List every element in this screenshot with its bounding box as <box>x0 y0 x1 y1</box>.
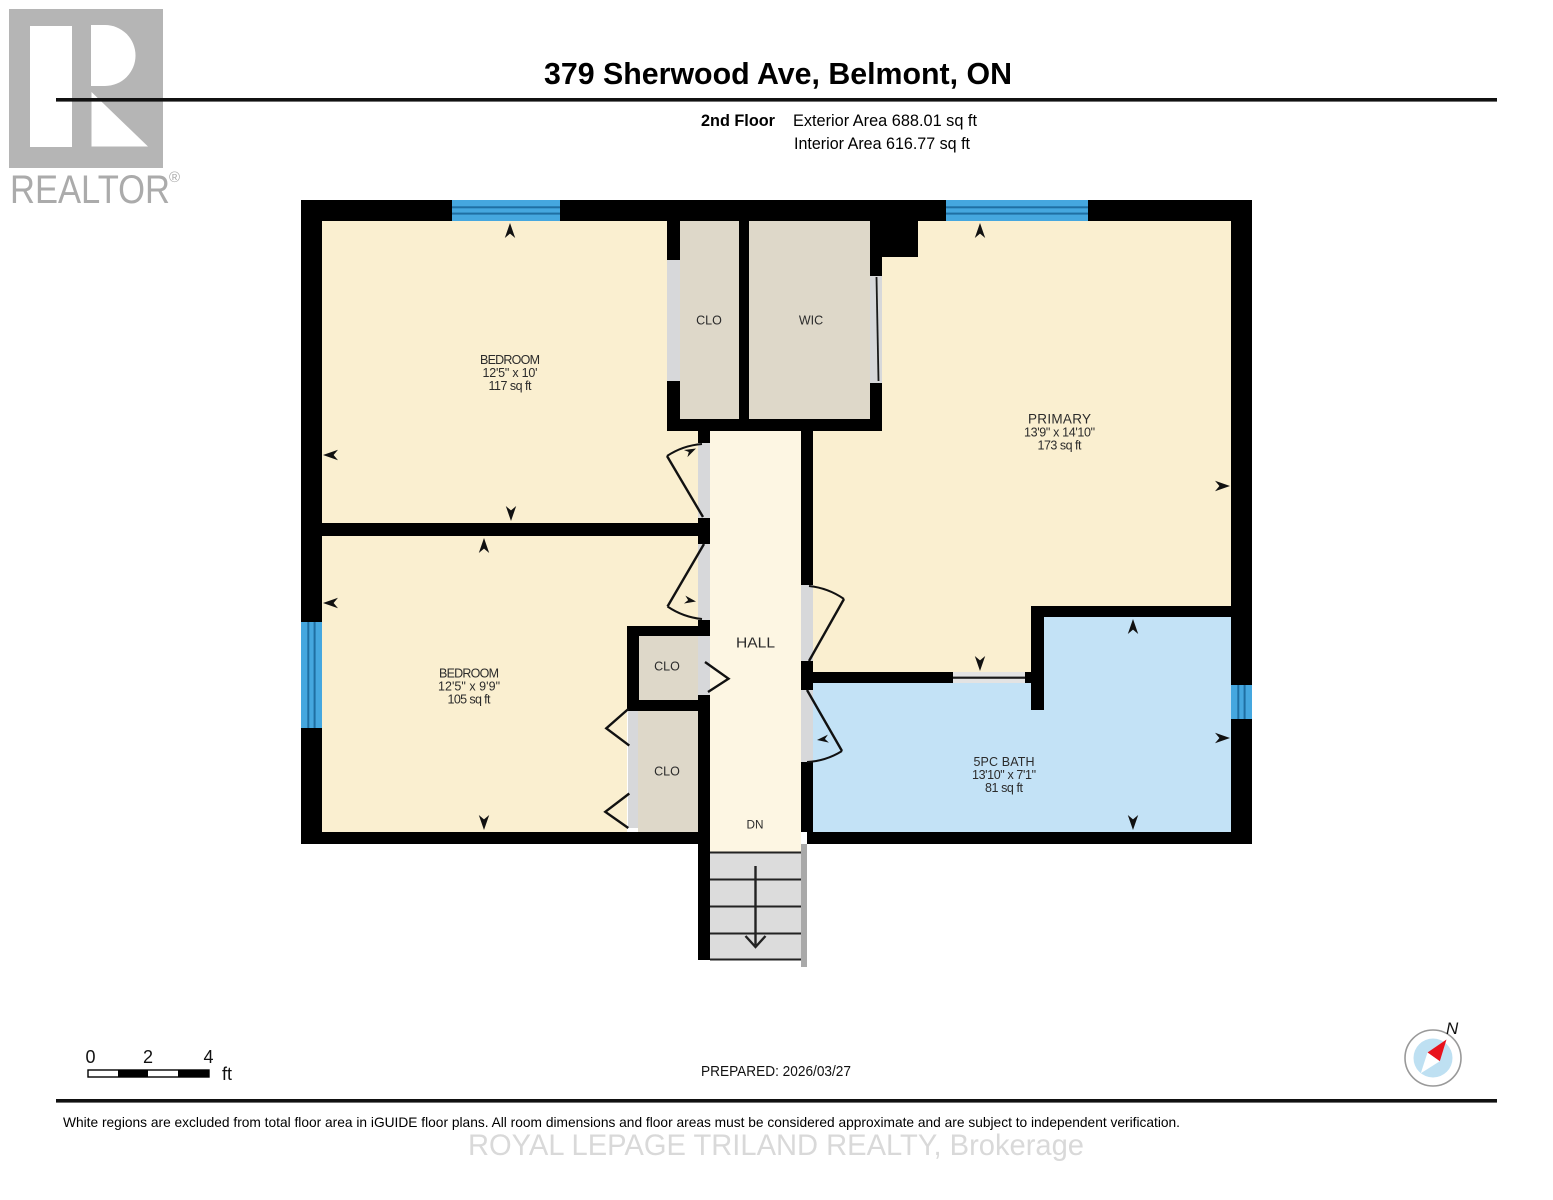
svg-text:BEDROOM: BEDROOM <box>439 667 499 681</box>
svg-text:13'9" x 14'10": 13'9" x 14'10" <box>1024 426 1095 440</box>
svg-text:173 sq ft: 173 sq ft <box>1038 439 1083 453</box>
svg-text:N: N <box>1446 1019 1459 1038</box>
svg-text:ft: ft <box>222 1064 232 1084</box>
svg-text:Exterior Area 688.01 sq ft: Exterior Area 688.01 sq ft <box>793 111 977 130</box>
svg-text:2: 2 <box>143 1047 153 1067</box>
svg-text:Interior Area 616.77 sq ft: Interior Area 616.77 sq ft <box>794 134 970 153</box>
svg-text:BEDROOM: BEDROOM <box>480 353 540 367</box>
svg-text:WIC: WIC <box>799 314 823 328</box>
svg-text:CLO: CLO <box>654 765 680 779</box>
svg-text:ROYAL LEPAGE TRILAND REALTY, B: ROYAL LEPAGE TRILAND REALTY, Brokerage <box>468 1129 1084 1162</box>
svg-text:PRIMARY: PRIMARY <box>1028 412 1091 427</box>
svg-text:13'10" x 7'1": 13'10" x 7'1" <box>972 768 1036 782</box>
svg-text:®: ® <box>169 169 180 186</box>
svg-text:0: 0 <box>85 1047 95 1067</box>
svg-text:2nd Floor: 2nd Floor <box>701 111 775 130</box>
svg-text:4: 4 <box>203 1047 213 1067</box>
svg-text:105 sq ft: 105 sq ft <box>448 693 492 707</box>
svg-text:PREPARED: 2026/03/27: PREPARED: 2026/03/27 <box>701 1063 851 1080</box>
svg-text:CLO: CLO <box>654 660 680 674</box>
svg-text:81 sq ft: 81 sq ft <box>985 781 1024 795</box>
svg-text:12'5" x 9'9": 12'5" x 9'9" <box>438 680 500 694</box>
svg-text:White regions are excluded fro: White regions are excluded from total fl… <box>63 1114 1180 1130</box>
svg-text:DN: DN <box>747 818 764 832</box>
svg-text:379 Sherwood Ave, Belmont, ON: 379 Sherwood Ave, Belmont, ON <box>544 56 1012 91</box>
svg-text:5PC BATH: 5PC BATH <box>974 755 1035 769</box>
svg-text:12'5" x 10': 12'5" x 10' <box>483 366 538 380</box>
svg-text:117 sq ft: 117 sq ft <box>489 379 533 393</box>
svg-text:CLO: CLO <box>696 314 722 328</box>
svg-text:HALL: HALL <box>736 636 775 652</box>
svg-text:REALTOR: REALTOR <box>10 168 170 212</box>
